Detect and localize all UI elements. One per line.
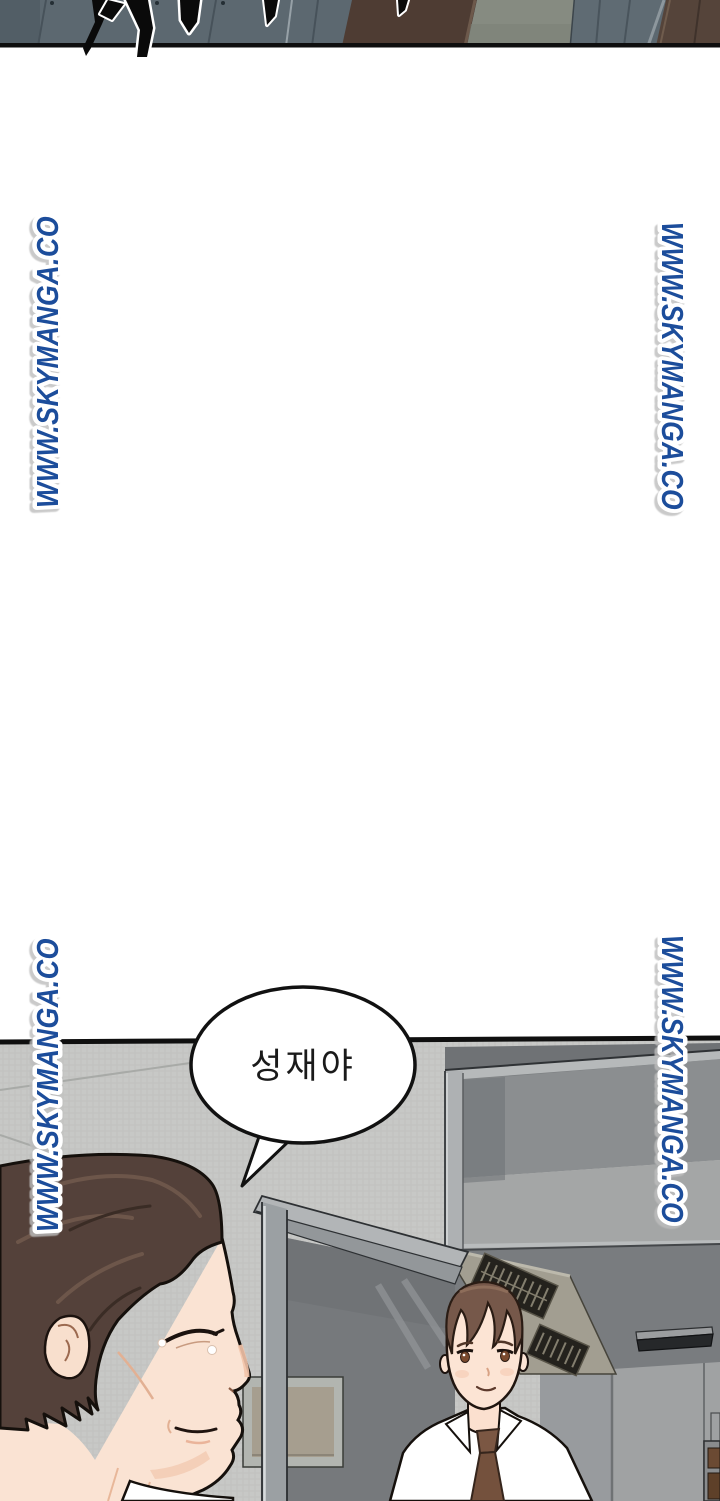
cheek-blush-right [500,1368,514,1376]
eye-sparkle-1 [158,1339,166,1347]
shelf-top [711,1413,720,1441]
speech-bubble-text: 성재야 [250,1047,356,1087]
watermark-upper-right: WWW.SKYMANGA.CO [655,222,690,510]
shelf-box-2 [708,1473,720,1499]
eye-sparkle-2 [208,1346,217,1355]
top-panel-border [0,43,720,48]
brown-figure-back [342,0,477,46]
cheek-blush-left [455,1370,469,1378]
watermark-lower-right: WWW.SKYMANGA.CO [655,935,690,1223]
top-panel-strip [0,0,720,57]
main-panel: 성재야 [0,987,720,1501]
older-man-ear [45,1316,89,1378]
sage-panel-shade [467,24,573,46]
door-sign [243,1377,343,1467]
top-panel-left-shade [0,0,40,46]
tie-knot [477,1429,499,1453]
watermark-upper-left: WWW.SKYMANGA.CO [30,216,65,508]
comic-artwork: 성재야 WWW.SKYMANGA.CO WWW.SKYMANGA.CO WWW.… [0,0,720,1501]
blue-panels [571,0,662,46]
webtoon-page: 성재야 WWW.SKYMANGA.CO WWW.SKYMANGA.CO WWW.… [0,0,720,1501]
glass-left-shade [463,1077,505,1183]
shelf-box-1 [708,1448,720,1468]
watermark-lower-left: WWW.SKYMANGA.CO [30,938,65,1232]
